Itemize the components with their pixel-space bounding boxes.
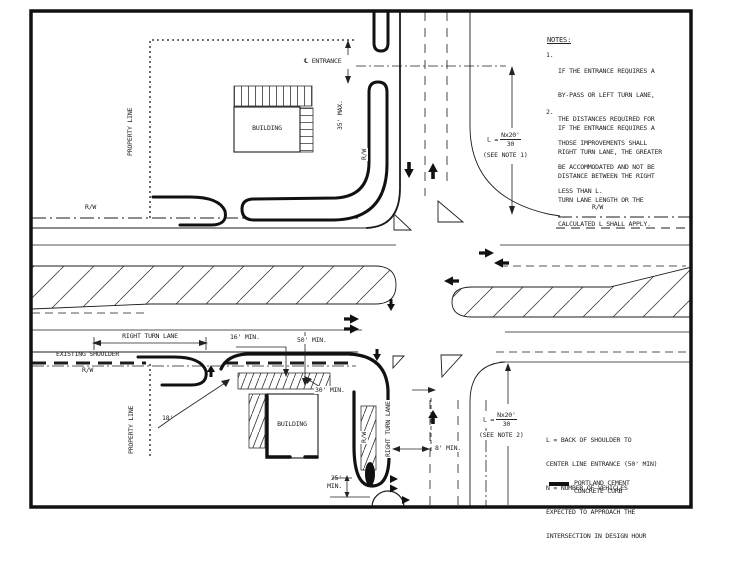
- side-street-lines: [366, 12, 560, 506]
- curb-return-bottom-edge: [372, 491, 404, 507]
- existing-shoulder-label: EXISTING SHOULDER: [56, 350, 119, 358]
- dim-25min-label: 25'MIN.: [320, 474, 342, 490]
- corner-islands: [393, 201, 463, 377]
- traffic-arrow-right-icon: [390, 485, 398, 493]
- parking-stalls-top-side: [300, 108, 313, 152]
- dim-18-label: 18': [162, 414, 173, 422]
- dim-50min-label: 50' MIN.: [296, 336, 328, 344]
- notes-title: NOTES:: [547, 36, 571, 44]
- parking-stalls-top-row: [234, 86, 312, 106]
- dim-30min-label: 30' MIN.: [314, 386, 346, 394]
- note2-text: IF THE ENTRANCE REQUIRES A RIGHT TURN LA…: [558, 108, 662, 236]
- property-line-label-top: PROPERTY LINE: [126, 108, 134, 156]
- traffic-arrow-up-icon: [428, 163, 438, 179]
- dim-8min-label: 8' MIN.: [434, 444, 462, 452]
- traffic-arrow-right-icon: [344, 324, 359, 333]
- entrance-divider-island: [365, 462, 375, 486]
- drawing-sheet: NOTES: 1. IF THE ENTRANCE REQUIRES A BY-…: [0, 0, 730, 570]
- formula-L-note2: L =Nx20'30: [482, 411, 518, 428]
- rw-label-south-west: R/W: [82, 366, 93, 374]
- median-island-east: [452, 267, 692, 317]
- top-parking-lot: [234, 86, 313, 152]
- building-label-bottom: BUILDING: [266, 420, 318, 428]
- legend-curb-line2: CONCRETE CURB: [574, 487, 622, 495]
- curb-return-south-west: [138, 357, 206, 385]
- formula-L-note1: L =Nx20'30: [486, 131, 522, 148]
- centerline-symbol: ℄: [304, 57, 308, 65]
- note1-number: 1.: [546, 51, 553, 59]
- building-label-top: BUILDING: [234, 124, 300, 132]
- traffic-arrow-right-icon: [344, 314, 359, 323]
- rw-label-west: R/W: [85, 203, 96, 211]
- traffic-arrow-right-icon: [402, 496, 410, 504]
- dim-16min-label: 16' MIN.: [230, 333, 260, 341]
- corner-island-ne: [438, 201, 463, 222]
- curb-island-upper: [374, 12, 388, 51]
- cl-entrance-label: ℄ ENTRANCE: [304, 57, 341, 65]
- rw-label-bottom-vertical: R/W: [360, 431, 368, 444]
- formula-L-note1-ref: (SEE NOTE 1): [482, 151, 529, 159]
- corner-island-nw: [394, 214, 411, 230]
- traffic-arrow-left-icon: [444, 276, 459, 285]
- median-island-west: [32, 266, 396, 309]
- rw-label-east: R/W: [592, 203, 603, 211]
- traffic-arrow-right-icon: [390, 475, 398, 483]
- traffic-arrow-right-icon: [479, 248, 494, 257]
- formula-L-note2-ref: (SEE NOTE 2): [478, 431, 525, 439]
- rw-label-top-vertical: R/W: [360, 148, 368, 161]
- parking-stalls-building-side: [249, 394, 265, 448]
- dim-35-max-label: 35' MAX.: [336, 99, 344, 131]
- traffic-arrow-up-icon: [207, 365, 215, 377]
- dim-16min-leader: [236, 347, 286, 372]
- concrete-curb-swatch: [549, 482, 569, 486]
- median-islands: [32, 266, 692, 317]
- traffic-arrow-down-icon: [373, 349, 381, 361]
- curb-return-north-west: [153, 197, 225, 225]
- right-turn-lane-vertical-label: RIGHT TURN LANE: [384, 400, 392, 458]
- traffic-arrow-down-icon: [404, 162, 414, 178]
- corner-island-se: [441, 355, 462, 377]
- corner-island-sw: [393, 356, 404, 368]
- legend-curb-line1: PORTLAND CEMENT: [574, 479, 630, 487]
- note2-number: 2.: [546, 108, 553, 116]
- right-turn-lane-dim-label: RIGHT TURN LANE: [97, 332, 203, 340]
- property-line-label-bottom: PROPERTY LINE: [127, 406, 135, 454]
